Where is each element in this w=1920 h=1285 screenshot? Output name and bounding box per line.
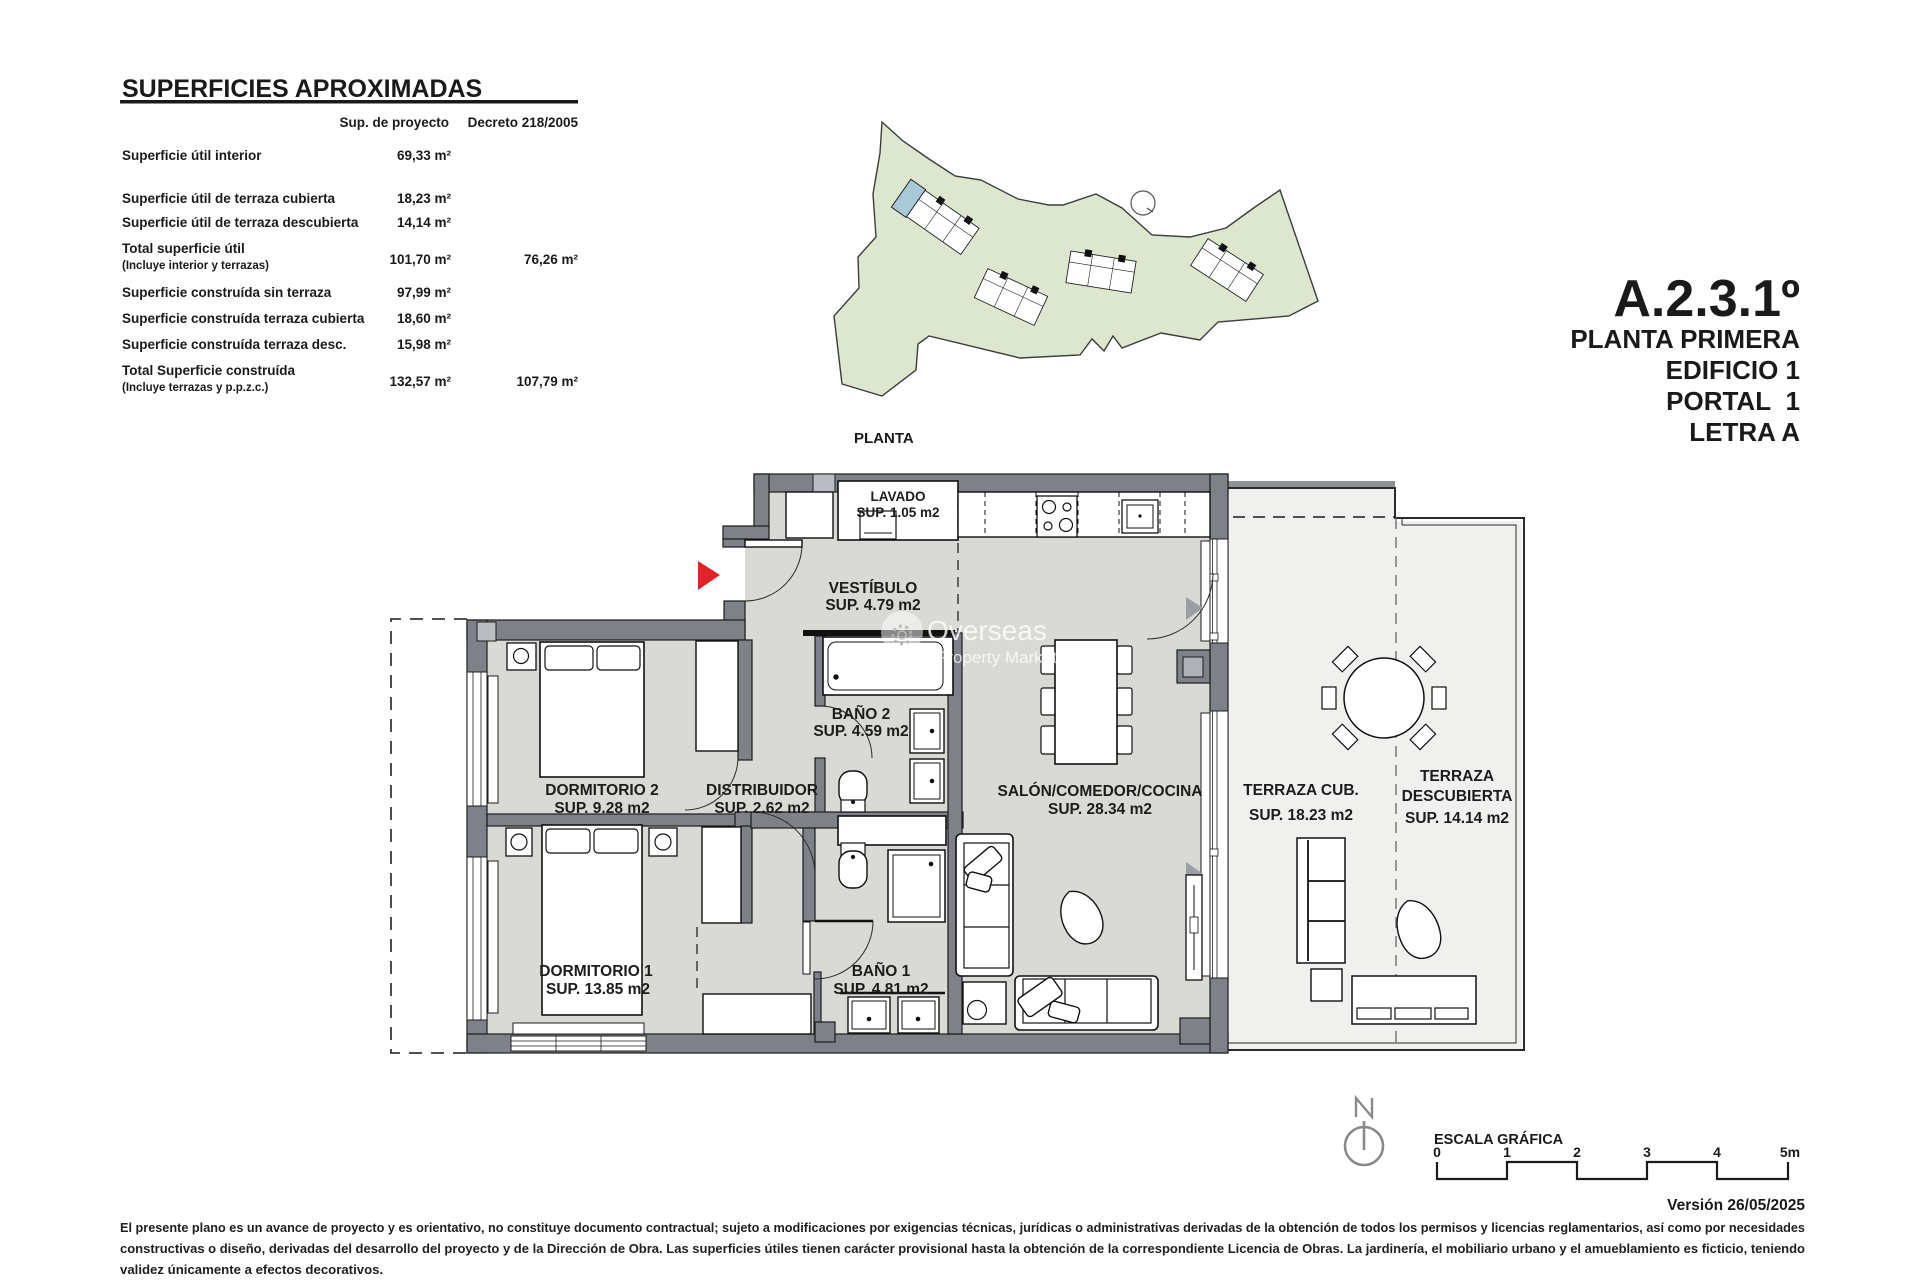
- svg-text:Overseas: Overseas: [927, 615, 1047, 646]
- svg-text:Total superficie útil: Total superficie útil: [122, 241, 245, 256]
- svg-text:Decreto 218/2005: Decreto 218/2005: [468, 115, 579, 130]
- svg-text:(Incluye terrazas y p.p.z.c.): (Incluye terrazas y p.p.z.c.): [122, 382, 269, 394]
- svg-text:BAÑO 2: BAÑO 2: [832, 705, 891, 723]
- svg-text:SUPERFICIES APROXIMADAS: SUPERFICIES APROXIMADAS: [122, 75, 482, 103]
- svg-text:LAVADO: LAVADO: [871, 489, 926, 504]
- svg-text:4: 4: [1713, 1144, 1721, 1160]
- svg-text:69,33 m²: 69,33 m²: [397, 148, 452, 163]
- svg-text:DORMITORIO 2: DORMITORIO 2: [545, 782, 658, 799]
- svg-text:SUP. 14.14 m2: SUP. 14.14 m2: [1405, 810, 1509, 827]
- svg-text:PORTAL 1: PORTAL 1: [1666, 386, 1800, 416]
- svg-text:TERRAZA CUB.: TERRAZA CUB.: [1243, 782, 1359, 799]
- svg-text:18,60 m²: 18,60 m²: [397, 311, 452, 326]
- svg-text:DORMITORIO 1: DORMITORIO 1: [539, 963, 653, 980]
- svg-text:SALÓN/COMEDOR/COCINA: SALÓN/COMEDOR/COCINA: [998, 782, 1203, 800]
- svg-text:El presente plano es un avance: El presente plano es un avance de proyec…: [120, 1220, 1805, 1235]
- svg-text:5m: 5m: [1780, 1144, 1800, 1160]
- svg-text:15,98 m²: 15,98 m²: [397, 337, 452, 352]
- svg-text:SUP. 18.23 m2: SUP. 18.23 m2: [1249, 807, 1353, 824]
- svg-text:0: 0: [1433, 1144, 1441, 1160]
- svg-text:Superficie útil interior: Superficie útil interior: [122, 148, 262, 163]
- svg-text:BAÑO 1: BAÑO 1: [852, 962, 911, 980]
- svg-text:validez únicamente a efectos d: validez únicamente a efectos decorativos…: [120, 1262, 383, 1277]
- svg-text:SUP. 9.28 m2: SUP. 9.28 m2: [554, 800, 649, 817]
- svg-text:PLANTA PRIMERA: PLANTA PRIMERA: [1570, 324, 1800, 354]
- svg-text:DESCUBIERTA: DESCUBIERTA: [1402, 788, 1513, 805]
- svg-text:SUP. 28.34 m2: SUP. 28.34 m2: [1048, 801, 1152, 818]
- svg-text:DISTRIBUIDOR: DISTRIBUIDOR: [706, 782, 818, 799]
- svg-text:Total Superficie construída: Total Superficie construída: [122, 363, 296, 378]
- svg-text:Superficie útil de terraza des: Superficie útil de terraza descubierta: [122, 215, 359, 230]
- svg-text:SUP. 4.79 m2: SUP. 4.79 m2: [825, 597, 920, 614]
- svg-text:Superficie construída sin terr: Superficie construída sin terraza: [122, 285, 332, 300]
- svg-text:SUP. 1.05 m2: SUP. 1.05 m2: [856, 505, 939, 520]
- svg-text:14,14 m²: 14,14 m²: [397, 215, 452, 230]
- svg-text:constructivas o diseño, deriva: constructivas o diseño, derivadas del de…: [120, 1241, 1805, 1256]
- svg-text:101,70 m²: 101,70 m²: [389, 252, 451, 267]
- svg-text:ESCALA GRÁFICA: ESCALA GRÁFICA: [1434, 1131, 1564, 1148]
- svg-text:18,23 m²: 18,23 m²: [397, 191, 452, 206]
- svg-text:SUP. 13.85 m2: SUP. 13.85 m2: [546, 981, 650, 998]
- svg-text:TERRAZA: TERRAZA: [1420, 768, 1494, 785]
- svg-text:VESTÍBULO: VESTÍBULO: [829, 580, 918, 597]
- svg-text:107,79 m²: 107,79 m²: [516, 374, 578, 389]
- svg-text:Versión 26/05/2025: Versión 26/05/2025: [1667, 1197, 1805, 1214]
- svg-text:SUP. 2.62 m2: SUP. 2.62 m2: [714, 800, 809, 817]
- svg-text:Sup. de proyecto: Sup. de proyecto: [339, 115, 449, 130]
- svg-text:Property Market: Property Market: [936, 648, 1057, 667]
- svg-text:76,26 m²: 76,26 m²: [524, 252, 579, 267]
- svg-text:SUP. 4.59 m2: SUP. 4.59 m2: [813, 723, 908, 740]
- svg-text:(Incluye interior y terrazas): (Incluye interior y terrazas): [122, 260, 269, 272]
- svg-text:LETRA A: LETRA A: [1689, 417, 1800, 447]
- svg-text:Superficie construída terraza: Superficie construída terraza cubierta: [122, 311, 365, 326]
- svg-text:132,57 m²: 132,57 m²: [389, 374, 451, 389]
- svg-text:2: 2: [1573, 1144, 1581, 1160]
- svg-text:SUP. 4.81 m2: SUP. 4.81 m2: [833, 981, 928, 998]
- svg-text:97,99 m²: 97,99 m²: [397, 285, 452, 300]
- svg-text:A.2.3.1º: A.2.3.1º: [1613, 270, 1800, 328]
- svg-text:PLANTA: PLANTA: [854, 430, 914, 447]
- svg-text:3: 3: [1643, 1144, 1651, 1160]
- svg-text:Superficie útil de terraza cub: Superficie útil de terraza cubierta: [122, 191, 336, 206]
- svg-text:1: 1: [1503, 1144, 1511, 1160]
- svg-text:EDIFICIO 1: EDIFICIO 1: [1666, 355, 1800, 385]
- svg-text:Superficie construída terraza: Superficie construída terraza desc.: [122, 337, 346, 352]
